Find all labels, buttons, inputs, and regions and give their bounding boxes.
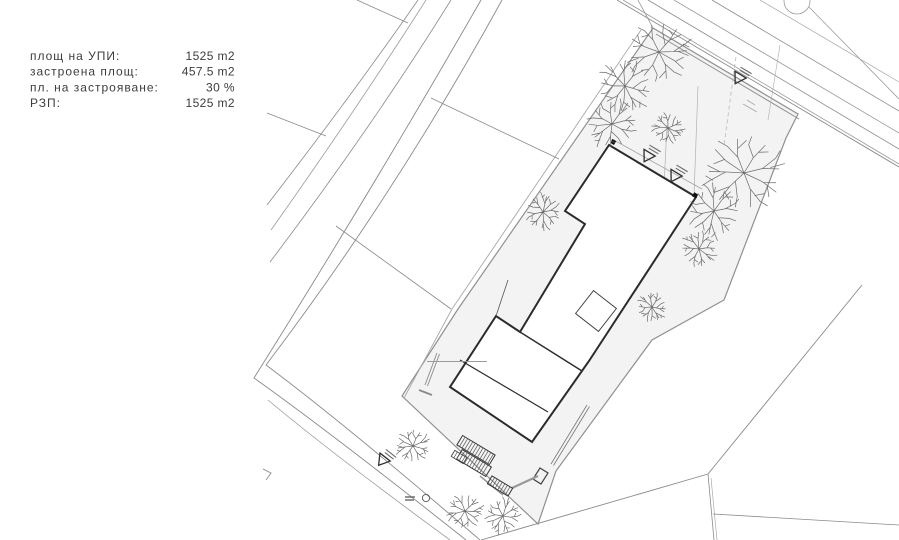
svg-text:площ на УПИ:: площ на УПИ: — [30, 49, 120, 63]
svg-text:457.5 m2: 457.5 m2 — [182, 65, 235, 79]
svg-text:1525 m2: 1525 m2 — [186, 49, 236, 63]
svg-text:30 %: 30 % — [206, 80, 235, 94]
svg-text:1525 m2: 1525 m2 — [186, 96, 236, 110]
svg-text:застроена площ:: застроена площ: — [30, 65, 139, 79]
svg-text:РЗП:: РЗП: — [30, 96, 61, 110]
svg-text:пл. на застрояване:: пл. на застрояване: — [30, 80, 159, 94]
